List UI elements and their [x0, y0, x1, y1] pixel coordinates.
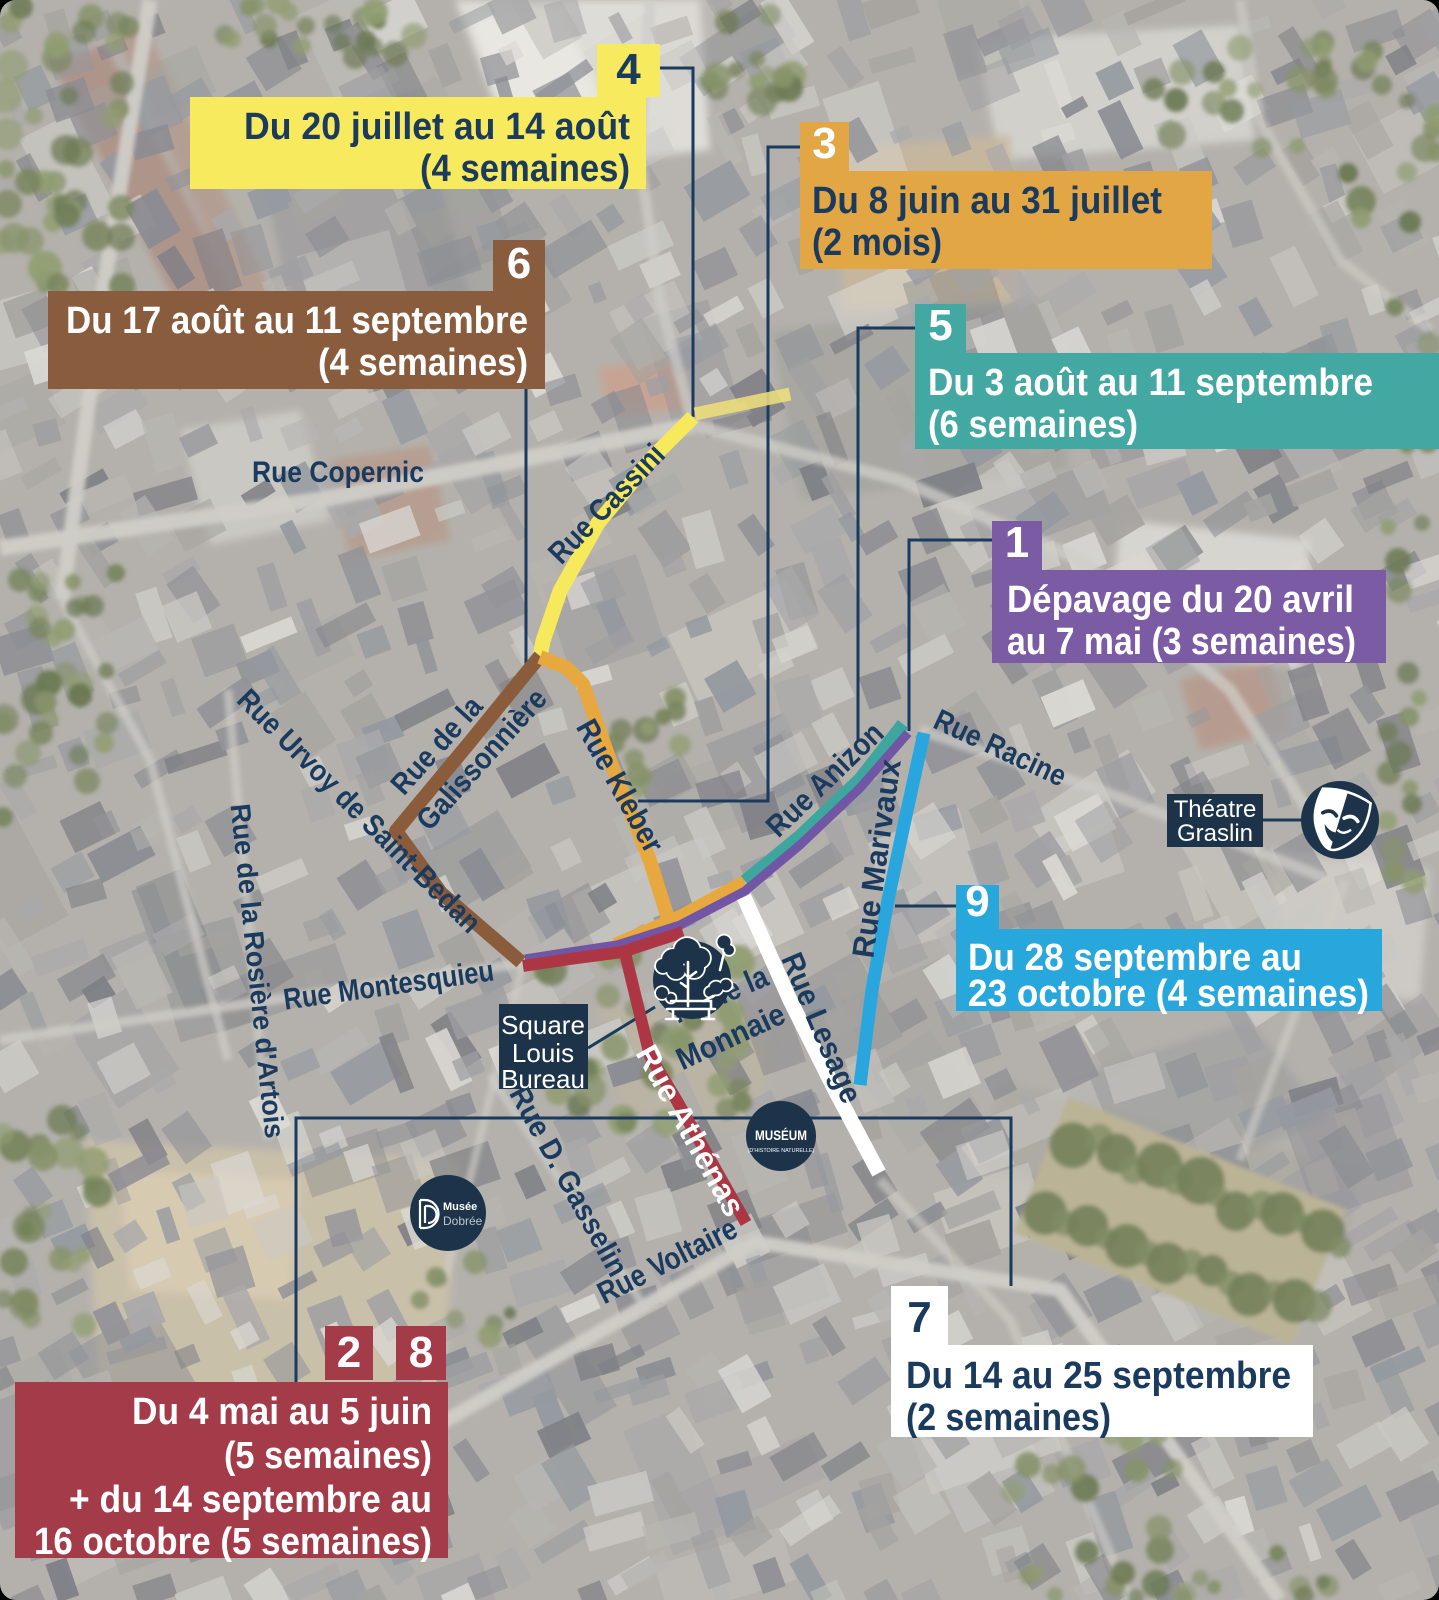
- svg-text:Dépavage du 20 avril: Dépavage du 20 avril: [1007, 579, 1354, 621]
- svg-text:(4 semaines): (4 semaines): [318, 342, 528, 384]
- svg-text:5: 5: [928, 301, 952, 350]
- svg-text:Du 20 juillet au 14 août: Du 20 juillet au 14 août: [244, 106, 630, 148]
- svg-text:6: 6: [507, 239, 531, 288]
- svg-text:(5 semaines): (5 semaines): [224, 1435, 432, 1477]
- svg-text:+ du 14 septembre au: + du 14 septembre au: [69, 1479, 432, 1521]
- svg-text:Du 3 août au 11 septembre: Du 3 août au 11 septembre: [928, 362, 1373, 404]
- svg-text:Théatre: Théatre: [1174, 796, 1257, 823]
- svg-text:16 octobre (5 semaines): 16 octobre (5 semaines): [34, 1521, 432, 1563]
- svg-text:Dobrée: Dobrée: [443, 1214, 483, 1228]
- svg-text:Du 4 mai au 5 juin: Du 4 mai au 5 juin: [132, 1391, 432, 1433]
- svg-text:1: 1: [1005, 518, 1029, 567]
- svg-text:Rue Copernic: Rue Copernic: [252, 456, 424, 489]
- svg-text:(2 mois): (2 mois): [812, 222, 942, 264]
- svg-text:(6 semaines): (6 semaines): [928, 404, 1138, 446]
- svg-text:2: 2: [337, 1328, 361, 1377]
- svg-text:Du 17 août au 11 septembre: Du 17 août au 11 septembre: [66, 300, 528, 342]
- svg-text:23 octobre (4 semaines): 23 octobre (4 semaines): [968, 973, 1369, 1015]
- svg-text:3: 3: [812, 119, 836, 168]
- svg-text:Du 14 au 25 septembre: Du 14 au 25 septembre: [906, 1355, 1291, 1397]
- svg-text:8: 8: [409, 1328, 433, 1377]
- svg-text:Graslin: Graslin: [1177, 820, 1253, 847]
- svg-text:9: 9: [965, 877, 989, 926]
- svg-text:4: 4: [616, 45, 641, 94]
- svg-text:MUSÉUM: MUSÉUM: [755, 1127, 807, 1143]
- svg-text:au 7 mai (3 semaines): au 7 mai (3 semaines): [1007, 621, 1356, 663]
- svg-text:(D'HISTOIRE NATURELLE): (D'HISTOIRE NATURELLE): [748, 1148, 815, 1154]
- svg-text:(2 semaines): (2 semaines): [906, 1397, 1111, 1439]
- svg-text:(4 semaines): (4 semaines): [420, 148, 630, 190]
- svg-text:Bureau: Bureau: [501, 1064, 585, 1094]
- svg-text:Square: Square: [501, 1010, 585, 1040]
- svg-text:Du 8 juin au 31 juillet: Du 8 juin au 31 juillet: [812, 180, 1162, 222]
- svg-text:7: 7: [907, 1293, 931, 1342]
- svg-text:Musée: Musée: [443, 1201, 477, 1213]
